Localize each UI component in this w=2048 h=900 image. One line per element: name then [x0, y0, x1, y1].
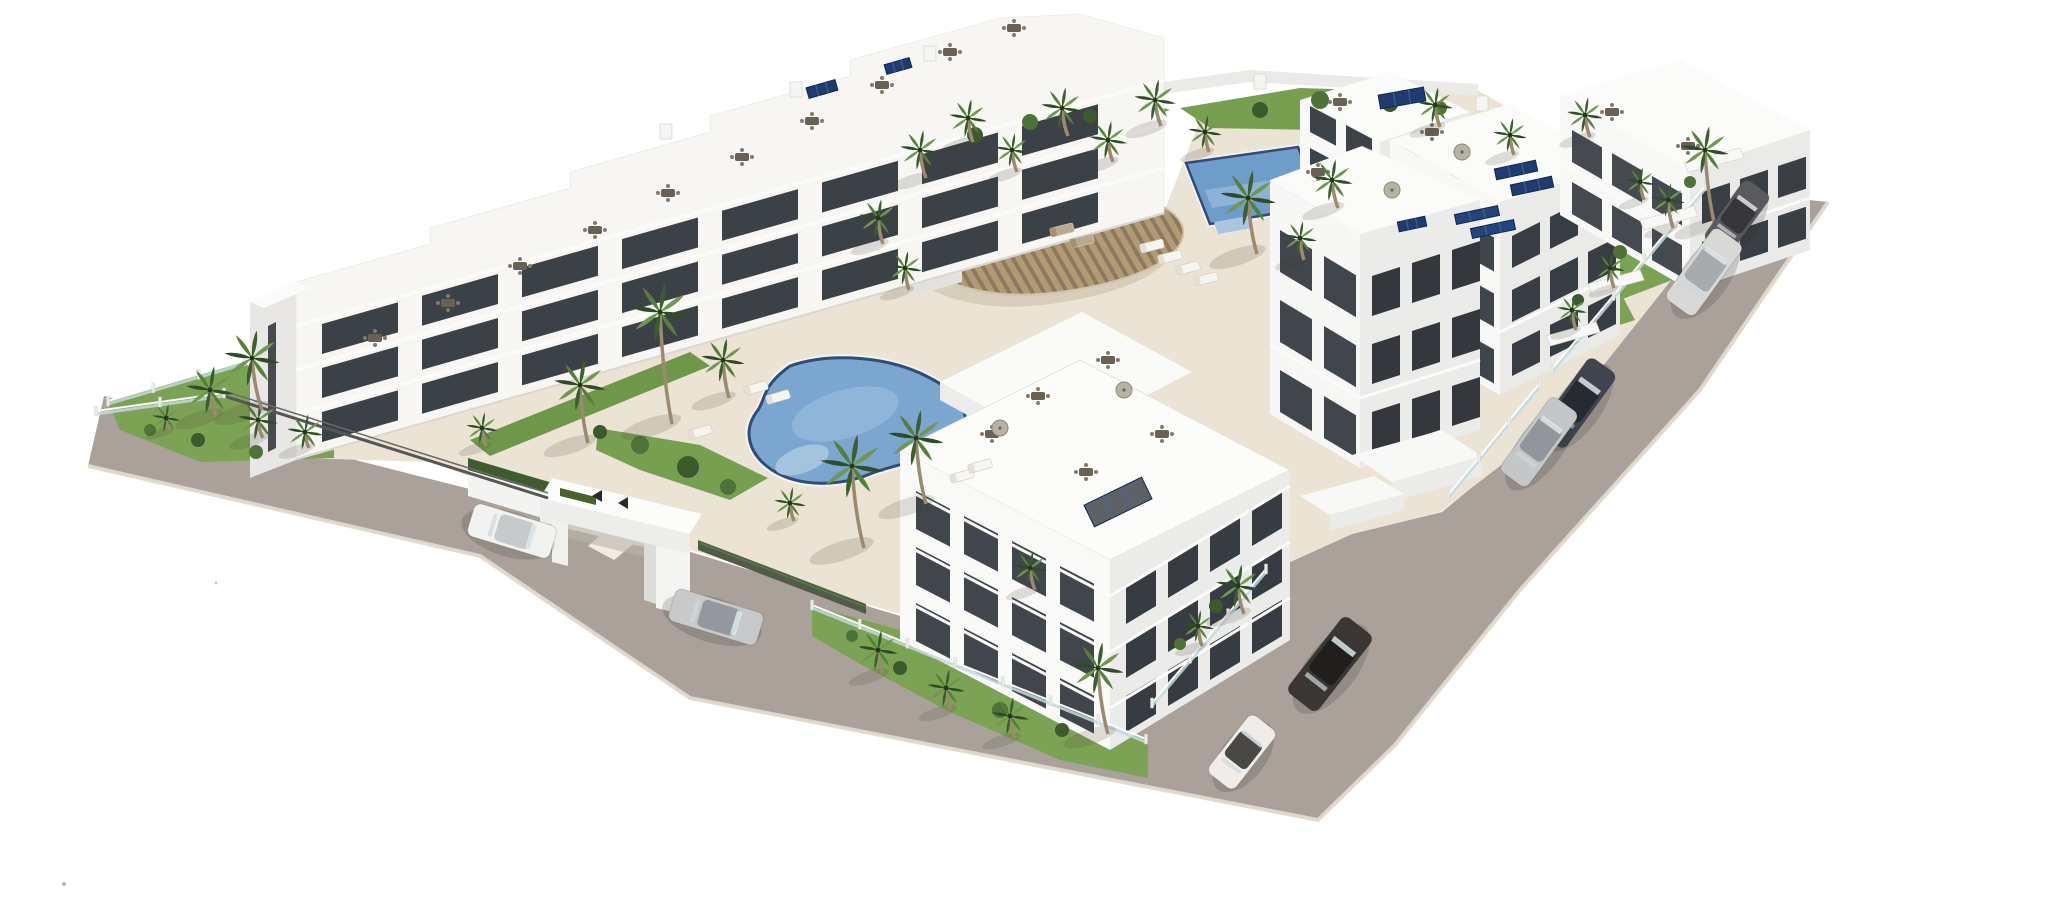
furniture-chair: [1026, 394, 1030, 398]
furniture-chair: [1046, 394, 1050, 398]
furniture-chair: [938, 50, 942, 54]
furniture-chair: [518, 257, 522, 261]
furniture-chair: [1328, 100, 1332, 104]
furniture-chair: [603, 228, 607, 232]
furniture-chair: [518, 271, 522, 275]
furniture-chair: [528, 264, 532, 268]
palm-crown: [164, 416, 169, 421]
palm-crown: [303, 430, 308, 435]
fence-post: [1145, 734, 1148, 744]
palm-crown: [1060, 106, 1065, 111]
furniture-chair: [958, 50, 962, 54]
fence-post: [1447, 490, 1450, 500]
furniture-chair: [820, 119, 824, 123]
palm-crown: [876, 216, 881, 221]
furniture-chair: [730, 155, 734, 159]
furniture-chair: [1600, 110, 1604, 114]
fence-post: [954, 657, 957, 667]
furniture-table: [441, 299, 455, 307]
furniture-chair: [593, 221, 597, 225]
furniture-chair: [948, 43, 952, 47]
palm-crown: [1196, 624, 1201, 629]
furniture-chair: [1160, 439, 1164, 443]
palm-crown: [250, 356, 255, 361]
garden-bush: [1311, 91, 1329, 109]
palm-crown: [918, 148, 923, 153]
furniture-chair: [373, 343, 377, 347]
furniture-chair: [1084, 463, 1088, 467]
furniture-table: [943, 48, 957, 56]
furniture-chair: [990, 439, 994, 443]
furniture-chair: [980, 432, 984, 436]
fence-post: [1151, 698, 1154, 708]
palm-crown: [1433, 103, 1438, 108]
furniture-table: [1031, 392, 1045, 400]
furniture-chair: [1094, 470, 1098, 474]
furniture-chair: [1002, 26, 1006, 30]
furniture-chair: [740, 162, 744, 166]
garden-bush: [1055, 723, 1069, 737]
fence-post: [1049, 696, 1052, 706]
garden-bush: [249, 445, 263, 459]
palm-crown: [1106, 138, 1111, 143]
furniture-chair: [508, 264, 512, 268]
palm-crown: [721, 358, 726, 363]
umbrella-pole: [1122, 388, 1125, 391]
garden-bush: [1613, 245, 1627, 259]
fence-post: [1265, 564, 1268, 574]
palm-crown: [256, 418, 261, 423]
stair-tower-window: [268, 322, 276, 452]
furniture-chair: [750, 155, 754, 159]
furniture-chair: [456, 301, 460, 305]
furniture-table: [735, 153, 749, 161]
furniture-chair: [676, 191, 680, 195]
garden-bush: [1684, 176, 1696, 188]
render-canvas: [0, 0, 2048, 900]
palm-crown: [1570, 308, 1575, 313]
umbrella-pole: [998, 426, 1001, 429]
garden-bush: [191, 433, 205, 447]
fence-post: [95, 406, 98, 416]
furniture-chair: [383, 336, 387, 340]
palm-crown: [1010, 148, 1015, 153]
fence-post: [1508, 415, 1511, 425]
palm-crown: [1028, 566, 1033, 571]
palm-crown: [1246, 196, 1251, 201]
garden-bush: [1209, 599, 1223, 613]
furniture-chair: [1106, 365, 1110, 369]
fence-post: [906, 638, 909, 648]
roof-vent: [660, 124, 672, 139]
furniture-chair: [1610, 103, 1614, 107]
palm-crown: [480, 426, 485, 431]
furniture-chair: [740, 148, 744, 152]
palm-crown: [1583, 113, 1588, 118]
furniture-chair: [1338, 93, 1342, 97]
furniture-table: [368, 334, 382, 342]
furniture-chair: [363, 336, 367, 340]
palm-crown: [1638, 180, 1643, 185]
fence-post: [1097, 715, 1100, 725]
furniture-chair: [1610, 117, 1614, 121]
furniture-chair: [593, 235, 597, 239]
palm-crown: [1096, 666, 1101, 671]
fence-post: [1551, 364, 1554, 374]
fence-post: [107, 396, 110, 406]
furniture-chair: [1686, 151, 1690, 155]
furniture-table: [1605, 108, 1619, 116]
furniture-chair: [870, 83, 874, 87]
fence-post: [1001, 677, 1004, 687]
fence-post: [152, 383, 155, 393]
palm-crown: [914, 436, 919, 441]
roof-vent: [1254, 74, 1266, 89]
furniture-chair: [800, 119, 804, 123]
furniture-chair: [1170, 432, 1174, 436]
garden-bush: [893, 661, 907, 675]
stray-mark: [62, 882, 66, 886]
fence-post: [1643, 254, 1646, 264]
furniture-chair: [1084, 477, 1088, 481]
furniture-chair: [436, 301, 440, 305]
palm-crown: [1608, 266, 1613, 271]
furniture-chair: [1036, 387, 1040, 391]
umbrella-pole: [1460, 150, 1463, 153]
fence-post: [811, 600, 814, 610]
furniture-chair: [666, 184, 670, 188]
garden-bush: [720, 479, 736, 495]
palm-crown: [944, 686, 949, 691]
furniture-table: [1101, 356, 1115, 364]
entrance-right-column-side: [644, 542, 656, 604]
furniture-table: [1079, 468, 1093, 476]
palm-crown: [788, 501, 793, 506]
furniture-chair: [1022, 26, 1026, 30]
furniture-table: [513, 262, 527, 270]
fence-post: [858, 619, 861, 629]
furniture-chair: [810, 126, 814, 130]
palm-crown: [1203, 130, 1208, 135]
palm-crown: [903, 266, 908, 271]
furniture-chair: [1116, 358, 1120, 362]
furniture-chair: [666, 198, 670, 202]
furniture-chair: [880, 76, 884, 80]
furniture-chair: [1012, 19, 1016, 23]
garden-bush: [846, 630, 858, 642]
furniture-chair: [1096, 358, 1100, 362]
palm-crown: [1153, 98, 1158, 103]
furniture-chair: [446, 308, 450, 312]
palm-crown: [966, 116, 971, 121]
roof-vent: [924, 46, 936, 61]
furniture-chair: [1306, 170, 1310, 174]
palm-crown: [1008, 714, 1013, 719]
garden-bush: [1252, 102, 1268, 118]
palm-crown: [1508, 133, 1513, 138]
stray-mark-2: [215, 582, 218, 585]
furniture-chair: [583, 228, 587, 232]
furniture-table: [1155, 430, 1169, 438]
palm-crown: [1703, 148, 1708, 153]
palm-crown: [1330, 178, 1335, 183]
furniture-chair: [948, 57, 952, 61]
furniture-chair: [1338, 107, 1342, 111]
palm-crown: [658, 310, 663, 315]
furniture-chair: [1036, 401, 1040, 405]
palm-crown: [208, 388, 213, 393]
furniture-chair: [656, 191, 660, 195]
furniture-chair: [1316, 163, 1320, 167]
garden-bush: [677, 456, 699, 478]
furniture-chair: [1676, 144, 1680, 148]
furniture-chair: [1430, 137, 1434, 141]
garden-bush: [1083, 109, 1097, 123]
fence-post: [1189, 653, 1192, 663]
furniture-chair: [1150, 432, 1154, 436]
furniture-chair: [1620, 110, 1624, 114]
furniture-chair: [1348, 100, 1352, 104]
furniture-chair: [446, 294, 450, 298]
furniture-chair: [880, 90, 884, 94]
roof-vent: [1476, 96, 1488, 111]
furniture-chair: [1160, 425, 1164, 429]
furniture-chair: [1106, 351, 1110, 355]
scene-root: [62, 14, 1828, 886]
palm-crown: [1236, 584, 1241, 589]
palm-crown: [1666, 198, 1671, 203]
fence-post: [1539, 378, 1542, 388]
furniture-chair: [1686, 137, 1690, 141]
palm-crown: [1298, 236, 1303, 241]
fence-post: [1477, 453, 1480, 463]
fence-post: [159, 397, 162, 407]
furniture-chair: [1074, 470, 1078, 474]
furniture-table: [805, 117, 819, 125]
furniture-table: [875, 81, 889, 89]
umbrella-pole: [1390, 188, 1393, 191]
furniture-chair: [1012, 33, 1016, 37]
furniture-chair: [890, 83, 894, 87]
architectural-render: [0, 0, 2048, 900]
palm-crown: [876, 648, 881, 653]
furniture-table: [588, 226, 602, 234]
furniture-table: [1333, 98, 1347, 106]
roof-vent: [790, 82, 802, 97]
furniture-table: [1007, 24, 1021, 32]
furniture-table: [661, 189, 675, 197]
furniture-chair: [1440, 130, 1444, 134]
garden-bush: [1022, 114, 1038, 130]
furniture-chair: [373, 329, 377, 333]
palm-crown: [578, 383, 583, 388]
furniture-chair: [810, 112, 814, 116]
palm-crown: [850, 464, 855, 469]
